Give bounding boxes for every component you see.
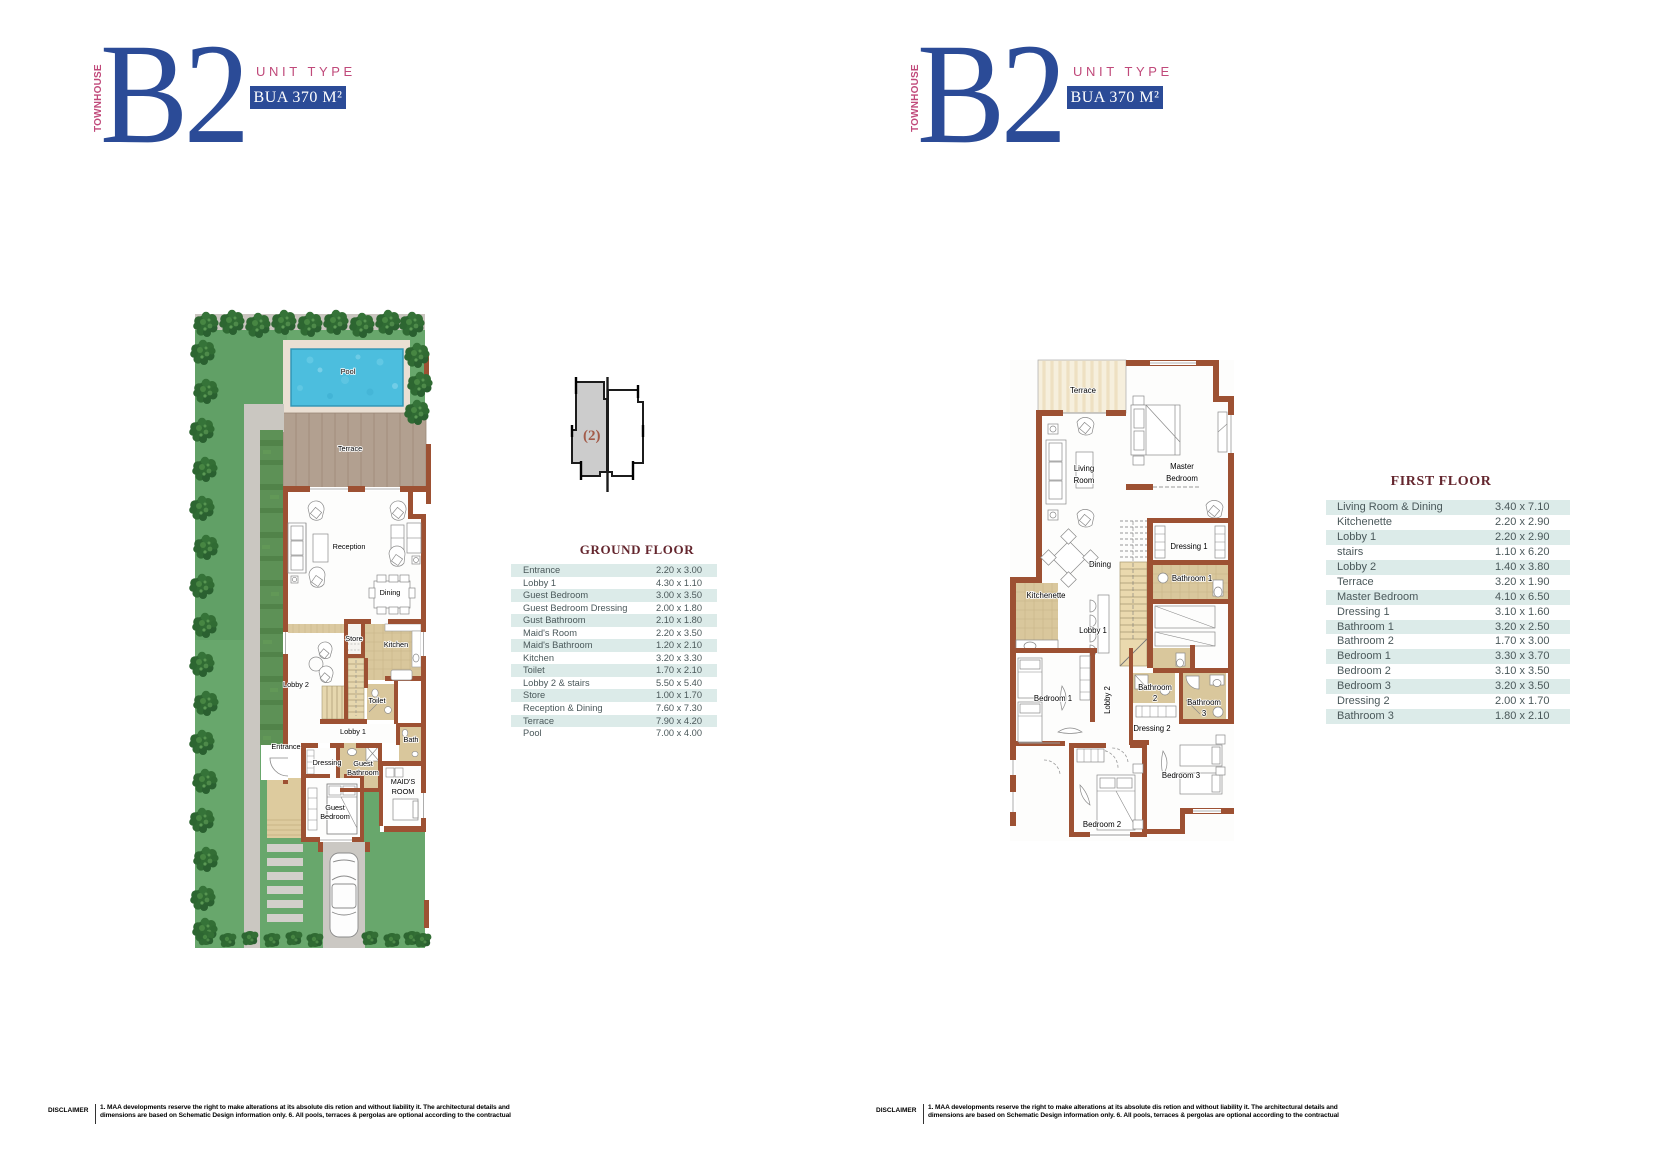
svg-text:Lobby 1: Lobby 1 <box>340 727 366 736</box>
svg-text:Living: Living <box>1074 464 1094 473</box>
svg-text:Bedroom 3: Bedroom 3 <box>1162 771 1200 780</box>
svg-text:Dressing 1: Dressing 1 <box>1170 542 1207 551</box>
svg-text:Reception: Reception <box>333 542 366 551</box>
svg-text:Dressing 2: Dressing 2 <box>1133 724 1170 733</box>
svg-text:ROOM: ROOM <box>392 787 415 796</box>
svg-text:Terrace: Terrace <box>1070 386 1096 395</box>
svg-text:Dressing: Dressing <box>313 758 342 767</box>
svg-text:Bath: Bath <box>403 735 418 744</box>
svg-text:Lobby 2: Lobby 2 <box>1103 686 1112 714</box>
svg-text:Toilet: Toilet <box>368 696 385 705</box>
svg-text:Lobby 1: Lobby 1 <box>1079 626 1107 635</box>
svg-text:Store: Store <box>345 634 362 643</box>
svg-text:Bathroom: Bathroom <box>1138 683 1172 692</box>
svg-text:Master: Master <box>1170 462 1194 471</box>
svg-text:Dining: Dining <box>380 588 401 597</box>
svg-text:Entrance: Entrance <box>271 742 300 751</box>
svg-text:Lobby 2: Lobby 2 <box>283 680 309 689</box>
svg-text:Bedroom 2: Bedroom 2 <box>1083 820 1121 829</box>
svg-text:Bedroom: Bedroom <box>1166 474 1198 483</box>
svg-text:Bedroom: Bedroom <box>320 812 350 821</box>
svg-text:Room: Room <box>1074 476 1095 485</box>
svg-text:Terrace: Terrace <box>338 444 362 453</box>
svg-text:Kitchen: Kitchen <box>384 640 408 649</box>
svg-text:Kitchenette: Kitchenette <box>1026 591 1065 600</box>
svg-text:Bathroom: Bathroom <box>347 768 379 777</box>
svg-text:Bathroom 1: Bathroom 1 <box>1172 574 1212 583</box>
svg-text:Bedroom 1: Bedroom 1 <box>1034 694 1072 703</box>
svg-text:Bathroom: Bathroom <box>1187 698 1221 707</box>
svg-text:Pool: Pool <box>341 367 356 376</box>
svg-text:3: 3 <box>1202 709 1206 718</box>
svg-text:2: 2 <box>1153 694 1157 703</box>
svg-text:(2): (2) <box>583 428 601 444</box>
svg-text:MAID'S: MAID'S <box>391 777 416 786</box>
svg-text:Guest: Guest <box>353 759 372 768</box>
svg-text:Dining: Dining <box>1089 560 1111 569</box>
svg-text:Guest: Guest <box>325 803 344 812</box>
